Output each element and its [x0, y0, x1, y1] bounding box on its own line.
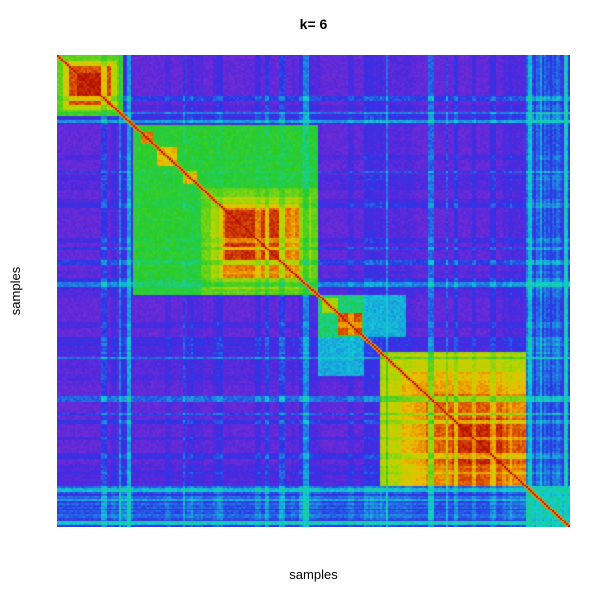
figure-page: k= 6 samples samples	[0, 0, 600, 600]
chart-title: k= 6	[57, 16, 570, 32]
x-axis-label: samples	[57, 567, 570, 582]
y-axis-label: samples	[8, 191, 24, 391]
consensus-heatmap-canvas	[57, 55, 570, 527]
